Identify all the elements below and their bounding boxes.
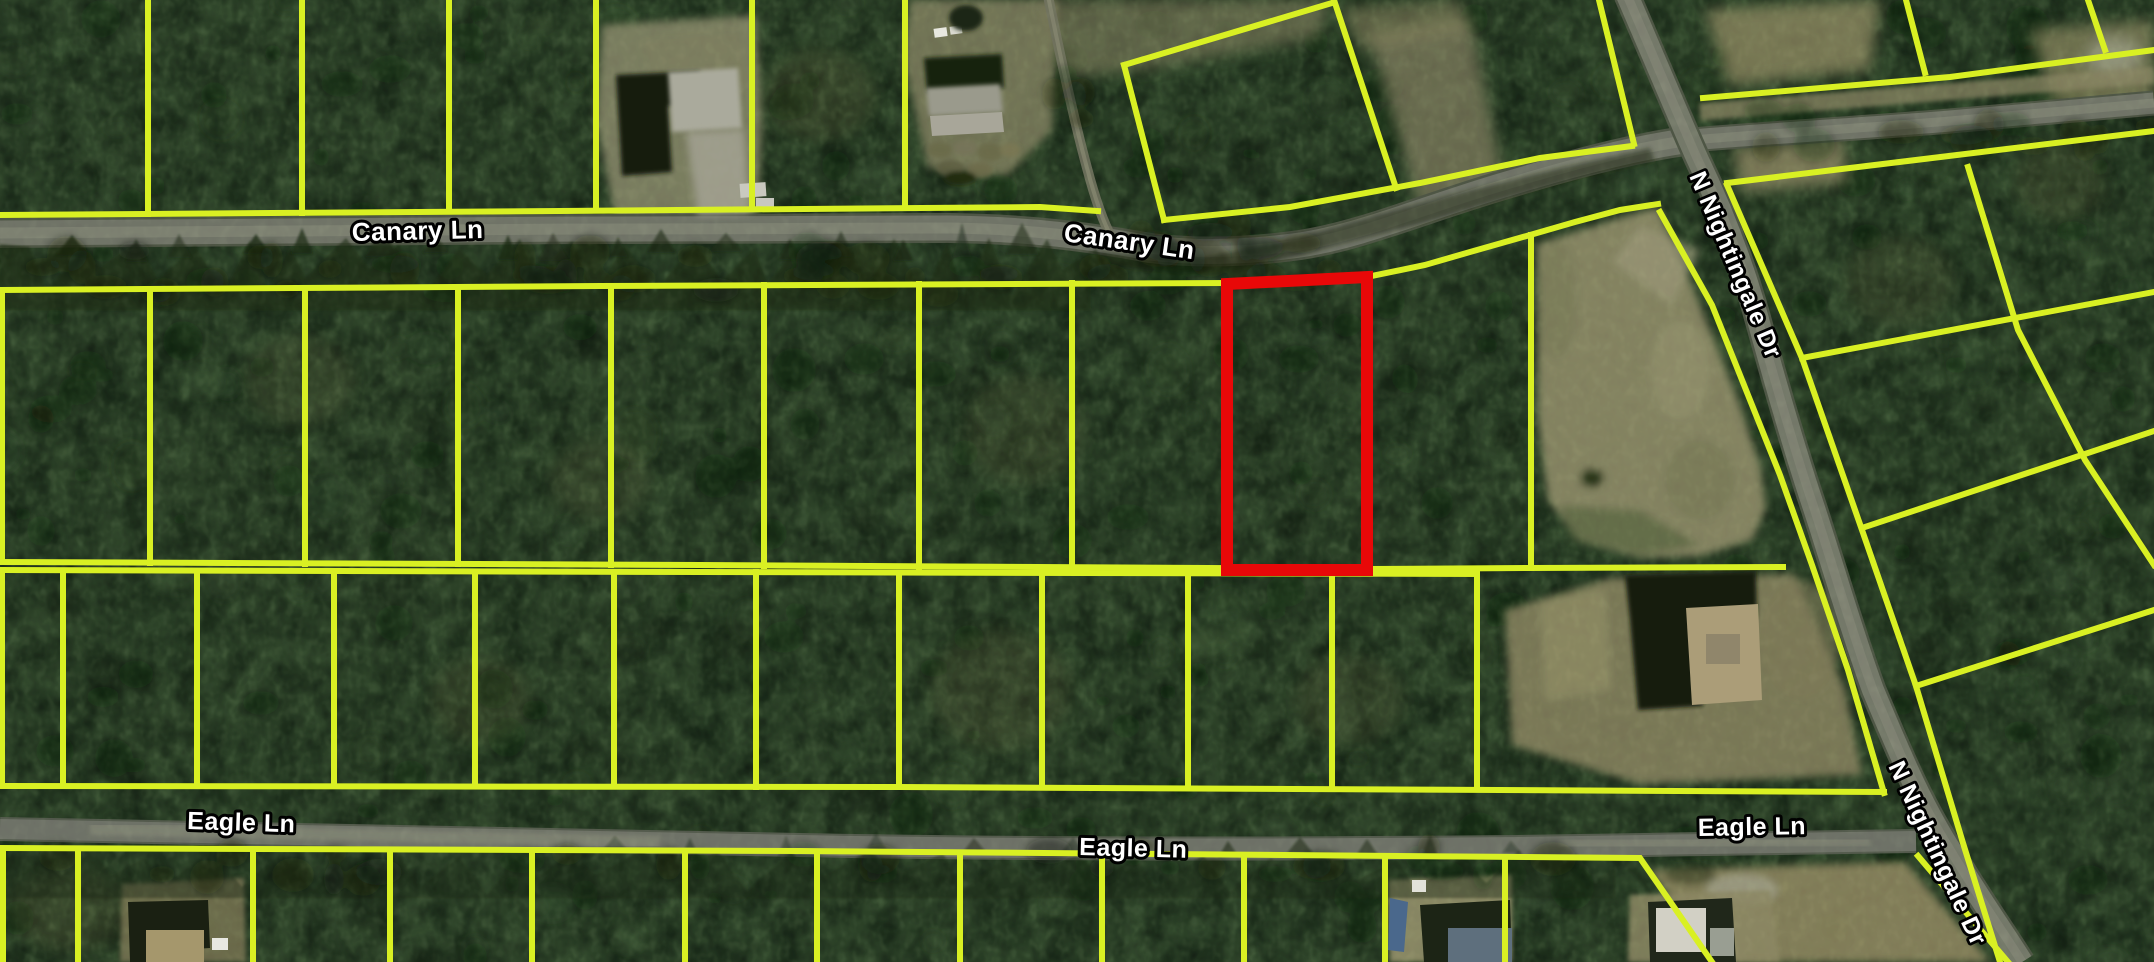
svg-text:Eagle Ln: Eagle Ln [1698,812,1807,842]
svg-text:Canary Ln: Canary Ln [351,214,483,247]
svg-text:Eagle Ln: Eagle Ln [1079,833,1188,864]
svg-text:Eagle Ln: Eagle Ln [187,807,296,838]
